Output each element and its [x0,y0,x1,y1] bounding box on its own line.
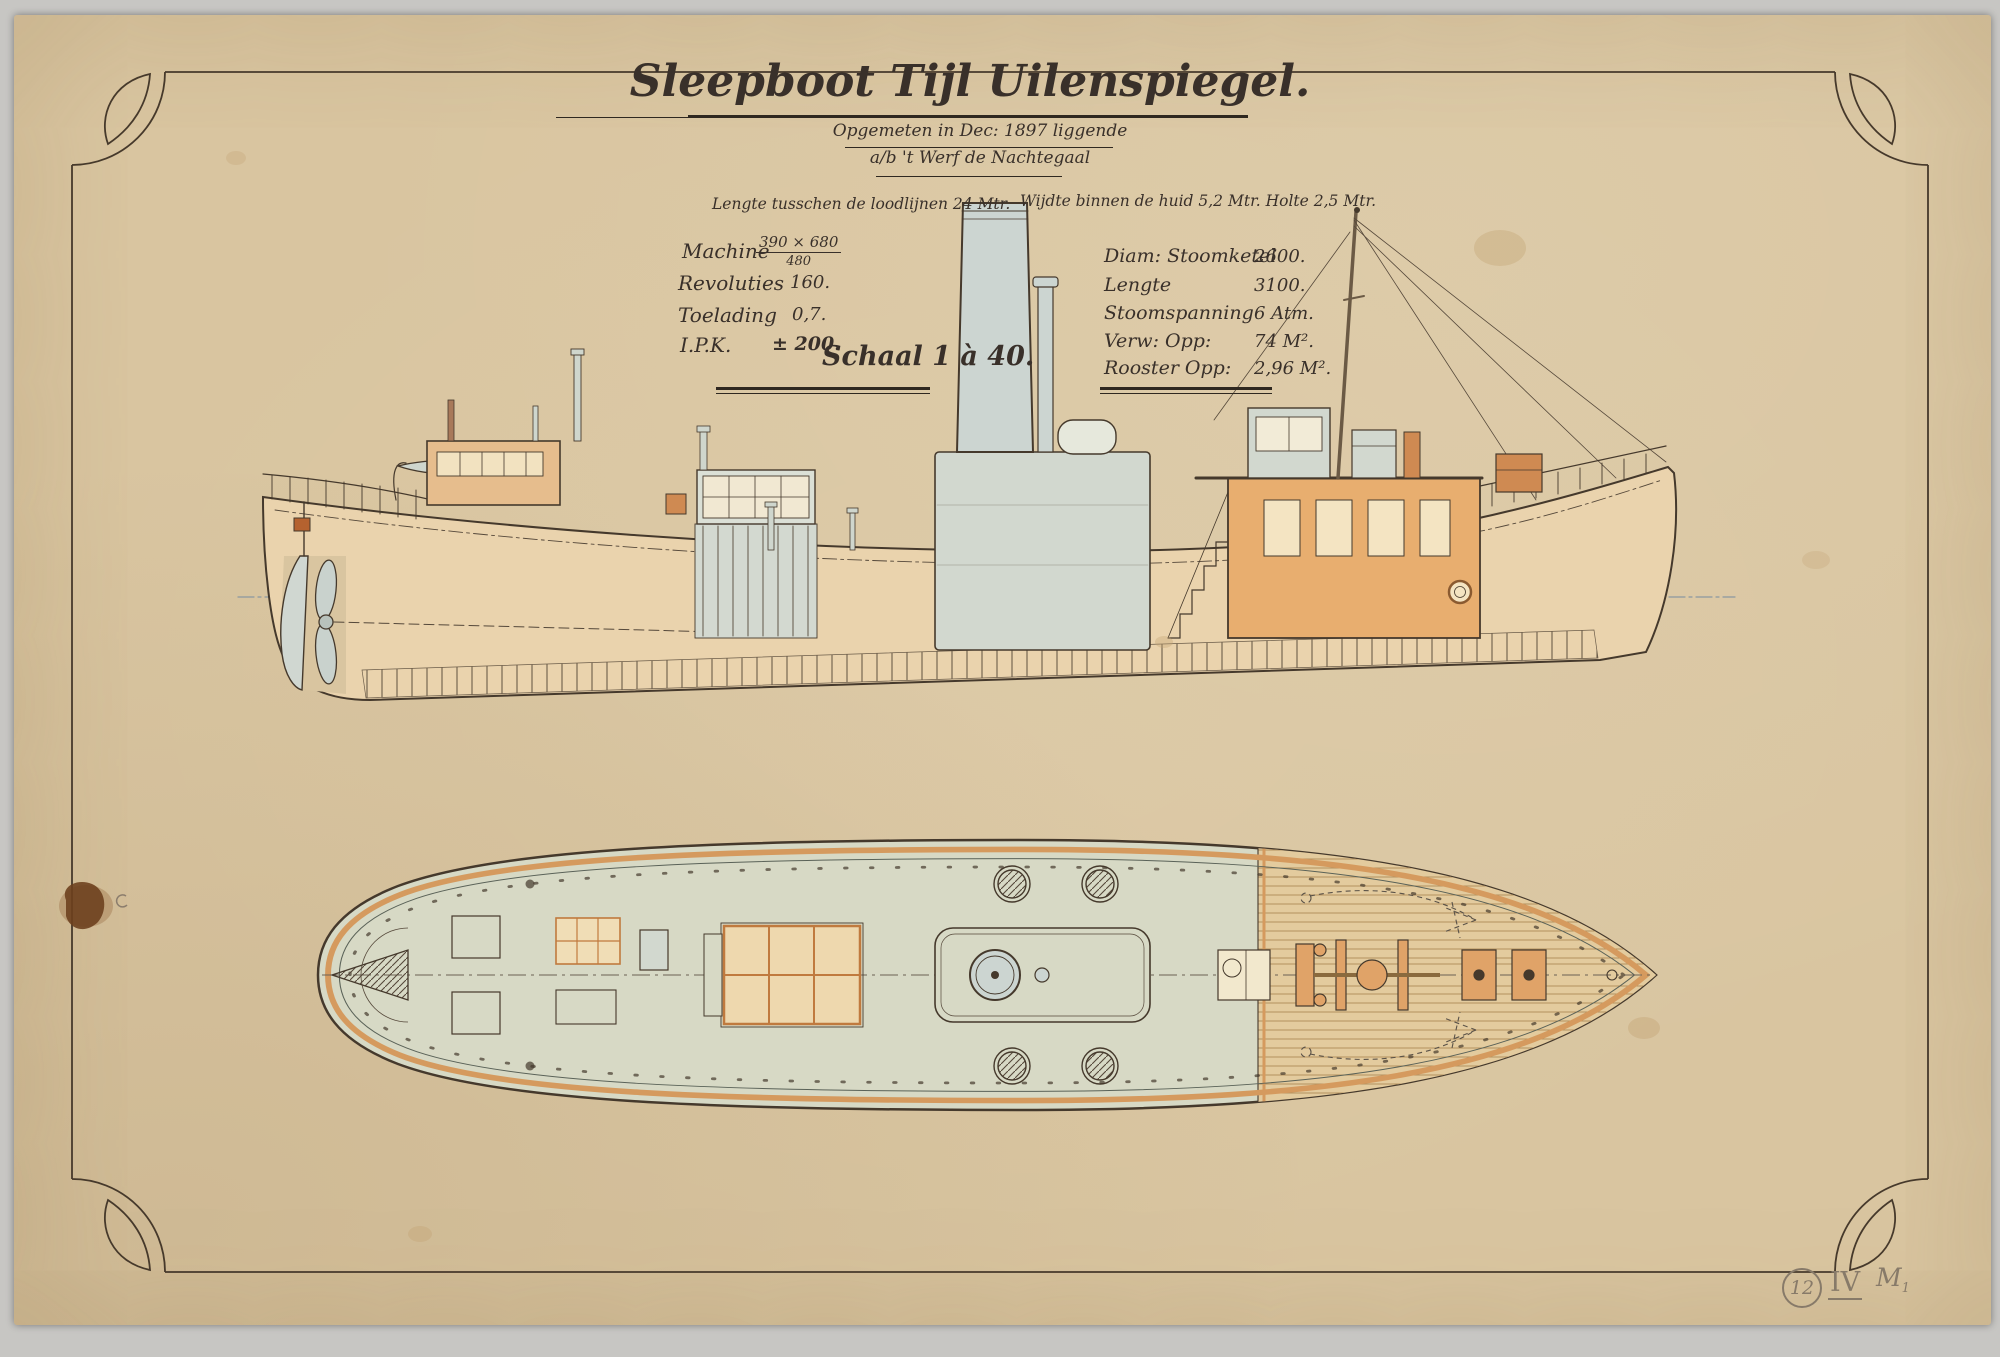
title-underline [688,115,1248,118]
vent-pipe [533,406,538,441]
subtitle-line2: a/b 't Werf de Nachtegaal [830,150,1130,168]
galley-stack [1404,432,1420,478]
roman-numeral-mark: IV [1828,1267,1862,1300]
boiler-length-label: Lengte [1104,276,1171,296]
sheet-number-circled: 12 [1782,1268,1822,1308]
aft-deckhouse-windows [437,452,543,476]
steam-pressure-value: 6 Atm. [1254,305,1314,324]
steam-pipe-small [574,354,581,441]
archive-mark: M1 [1876,1263,1910,1296]
boiler-casing [935,452,1150,650]
scanned-sheet-photo: { "sheet": { "title": "Sleepboot Tijl Ui… [0,0,2000,1342]
scale-underline [716,387,930,394]
pencil-mark-c [117,895,127,907]
admission-value: 0,7. [792,306,826,325]
steam-dome [1058,420,1116,454]
drawing-sheet: Sleepboot Tijl Uilenspiegel. Opgemeten i… [14,15,1991,1325]
boiler-diameter-label: Diam: Stoomketel [1104,247,1276,267]
revolutions-label: Revoluties [678,273,784,294]
revolutions-value: 160. [790,274,830,293]
boiler-length-value: 3100. [1254,277,1306,296]
steam-pipe [1038,286,1053,452]
sheet-number: 12 [1790,1277,1814,1299]
funnel [957,203,1033,452]
aft-hatch [452,992,500,1034]
subtitle2-underline [876,176,1062,177]
aft-hatch [452,916,500,958]
bollard [526,880,535,889]
chart-room [1352,430,1396,478]
grate-area-value: 2,96 M². [1254,360,1331,379]
archive-mark-letter: M [1876,1263,1902,1292]
boiler-diameter-value: 2600. [1254,248,1306,267]
admission-label: Toelading [678,305,777,326]
deck-vent [850,512,855,550]
machine-value-fraction: 390 × 680 480 [756,233,841,269]
vent-pipe [448,400,454,441]
length-dimension-note: Lengte tusschen de loodlijnen 24 Mtr. [712,196,1010,212]
porthole [1449,581,1471,603]
steam-pipe-plan [1035,968,1049,982]
bollard [526,1062,535,1071]
stern-chock [294,518,310,531]
heating-surface-label: Verw: Opp: [1104,332,1211,352]
deck-vent [768,506,774,550]
machine-bore-stroke: 390 × 680 [756,233,841,253]
beam-depth-dimension-note: Wijdte binnen de huid 5,2 Mtr. Holte 2,5… [1020,193,1376,209]
boiler-specs-underline [1100,387,1272,394]
sheet-title: Sleepboot Tijl Uilenspiegel. [620,59,1320,105]
engine-skylight [704,923,863,1027]
aft-rail [263,474,432,500]
grate-area-label: Rooster Opp: [1104,359,1231,379]
title-underline-flourish [556,117,688,118]
archive-mark-subscript: 1 [1902,1281,1910,1296]
ihp-label: I.P.K. [680,335,731,356]
subtitle-line1: Opgemeten in Dec: 1897 liggende [810,123,1150,141]
cabin-skylight [556,918,620,964]
fore-hatch [1218,950,1270,1000]
drawing-artwork [14,15,2000,1357]
deck-plan-view [318,838,1662,1114]
windlass-elevation [1496,454,1542,492]
side-elevation-view [238,203,1735,700]
steam-pressure-label: Stoomspanning [1104,304,1254,324]
companionway [640,930,668,970]
heating-surface-value: 74 M². [1254,333,1314,352]
scale-label: Schaal 1 à 40. [822,343,1034,371]
machine-stroke: 480 [756,253,841,269]
